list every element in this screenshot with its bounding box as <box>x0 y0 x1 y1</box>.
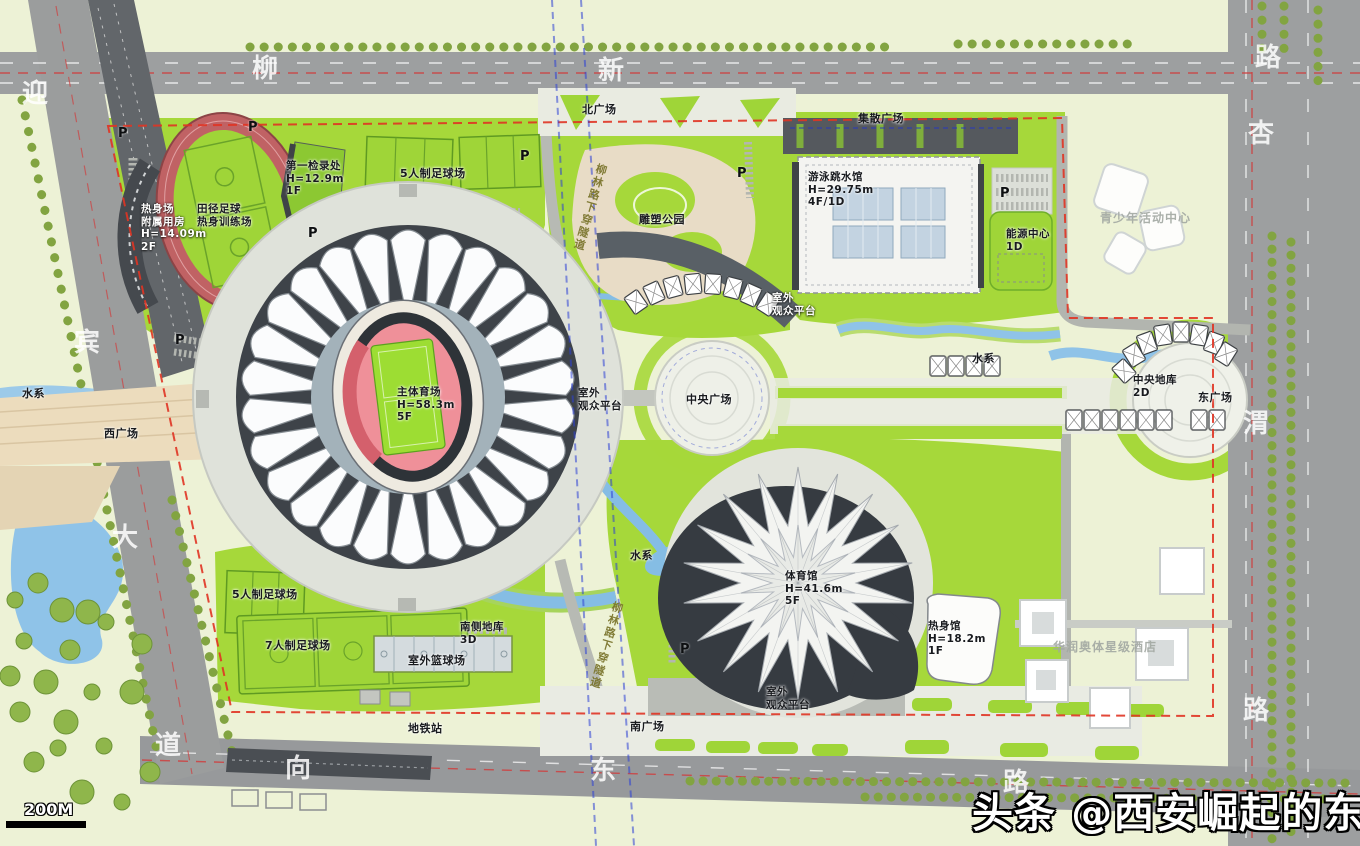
label-gymnasium: 体育馆 H=41.6m 5F <box>785 570 843 608</box>
label-hotel: 华润奥体星级酒店 <box>1053 640 1157 654</box>
label-warmup-gym: 热身馆 H=18.2m 1F <box>928 620 986 658</box>
label-youth-center: 青少年活动中心 <box>1100 211 1191 225</box>
label-central-plaza: 中央广场 <box>686 393 732 406</box>
label-gathering-plaza: 集散广场 <box>858 112 904 125</box>
parking-marker: P <box>118 126 128 141</box>
label-south-plaza: 南广场 <box>630 720 665 733</box>
label-west-plaza: 西广场 <box>104 427 139 440</box>
label-sculpture-park: 雕塑公园 <box>639 213 685 226</box>
road-north-char-2: 路 <box>1255 43 1281 74</box>
watermark: 头条 @西安崛起的东城 <box>972 779 1360 839</box>
label-east-plaza: 东广场 <box>1198 391 1233 404</box>
parking-marker: P <box>520 149 530 164</box>
parking-marker: P <box>308 226 318 241</box>
road-south-char-1: 东 <box>590 756 616 787</box>
label-water-west: 水系 <box>22 387 45 400</box>
road-east-char-1: 渭 <box>1243 409 1269 440</box>
parking-marker: P <box>680 642 690 657</box>
label-futsal-north: 5人制足球场 <box>400 167 466 180</box>
label-basketball: 室外篮球场 <box>408 654 466 667</box>
label-first-checkin: 第一检录处 H=12.9m 1F <box>286 160 344 198</box>
label-natatorium: 游泳跳水馆 H=29.75m 4F/1D <box>808 171 874 209</box>
label-main-stadium: 主体育场 H=58.3m 5F <box>397 386 455 424</box>
label-platform-ne: 室外 观众平台 <box>772 292 816 317</box>
label-water-east: 水系 <box>972 352 995 365</box>
parking-marker: P <box>1000 186 1010 201</box>
label-water-south: 水系 <box>630 549 653 562</box>
road-east-char-2: 路 <box>1243 696 1269 727</box>
road-west-char-2: 大 <box>112 523 138 554</box>
label-football7: 7人制足球场 <box>265 639 331 652</box>
road-west-char-3: 道 <box>155 731 181 762</box>
parking-marker: P <box>737 166 747 181</box>
label-north-plaza: 北广场 <box>582 103 617 116</box>
label-training-field: 田径足球 热身训练场 <box>197 203 252 228</box>
road-west-char-0: 迎 <box>22 79 48 110</box>
label-futsal-south: 5人制足球场 <box>232 588 298 601</box>
parking-marker: P <box>248 120 258 135</box>
road-east-char-0: 杏 <box>1248 119 1274 150</box>
label-platform-south: 室外 观众平台 <box>766 686 810 711</box>
road-north-char-0: 柳 <box>252 54 278 85</box>
label-central-garage: 中央地库 2D <box>1133 374 1177 399</box>
label-metro-station: 地铁站 <box>408 722 443 735</box>
scale-bar <box>6 821 86 828</box>
label-platform-west: 室外 观众平台 <box>578 387 622 412</box>
road-north-char-1: 新 <box>598 56 624 87</box>
label-energy-center: 能源中心 1D <box>1006 228 1050 253</box>
site-plan-map: 北广场 集散广场 游泳跳水馆 H=29.75m 4F/1D 能源中心 1D 青少… <box>0 0 1360 846</box>
road-west-char-1: 宾 <box>74 328 100 359</box>
road-south-char-0: 向 <box>285 754 311 785</box>
parking-marker: P <box>175 333 185 348</box>
label-south-garage: 南侧地库 3D <box>460 621 504 646</box>
map-graphics <box>0 0 1360 846</box>
scale-label: 200M <box>24 800 73 819</box>
